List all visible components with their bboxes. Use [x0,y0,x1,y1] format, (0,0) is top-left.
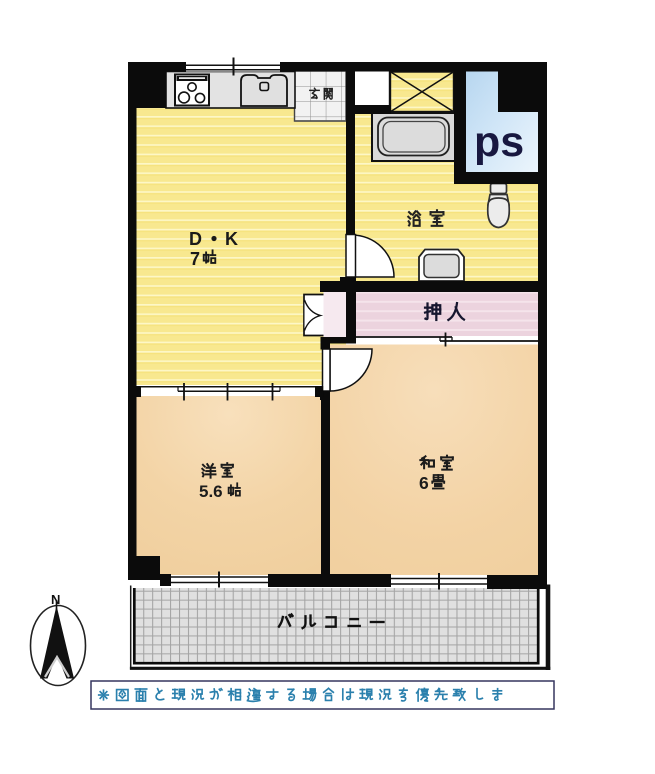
svg-text:5.6: 5.6 [199,482,223,501]
svg-text:D: D [189,229,202,249]
svg-text:ps: ps [474,118,524,166]
svg-text:N: N [51,592,60,607]
svg-text:K: K [225,229,238,249]
svg-text:7: 7 [190,249,200,269]
svg-text:6: 6 [419,473,429,493]
